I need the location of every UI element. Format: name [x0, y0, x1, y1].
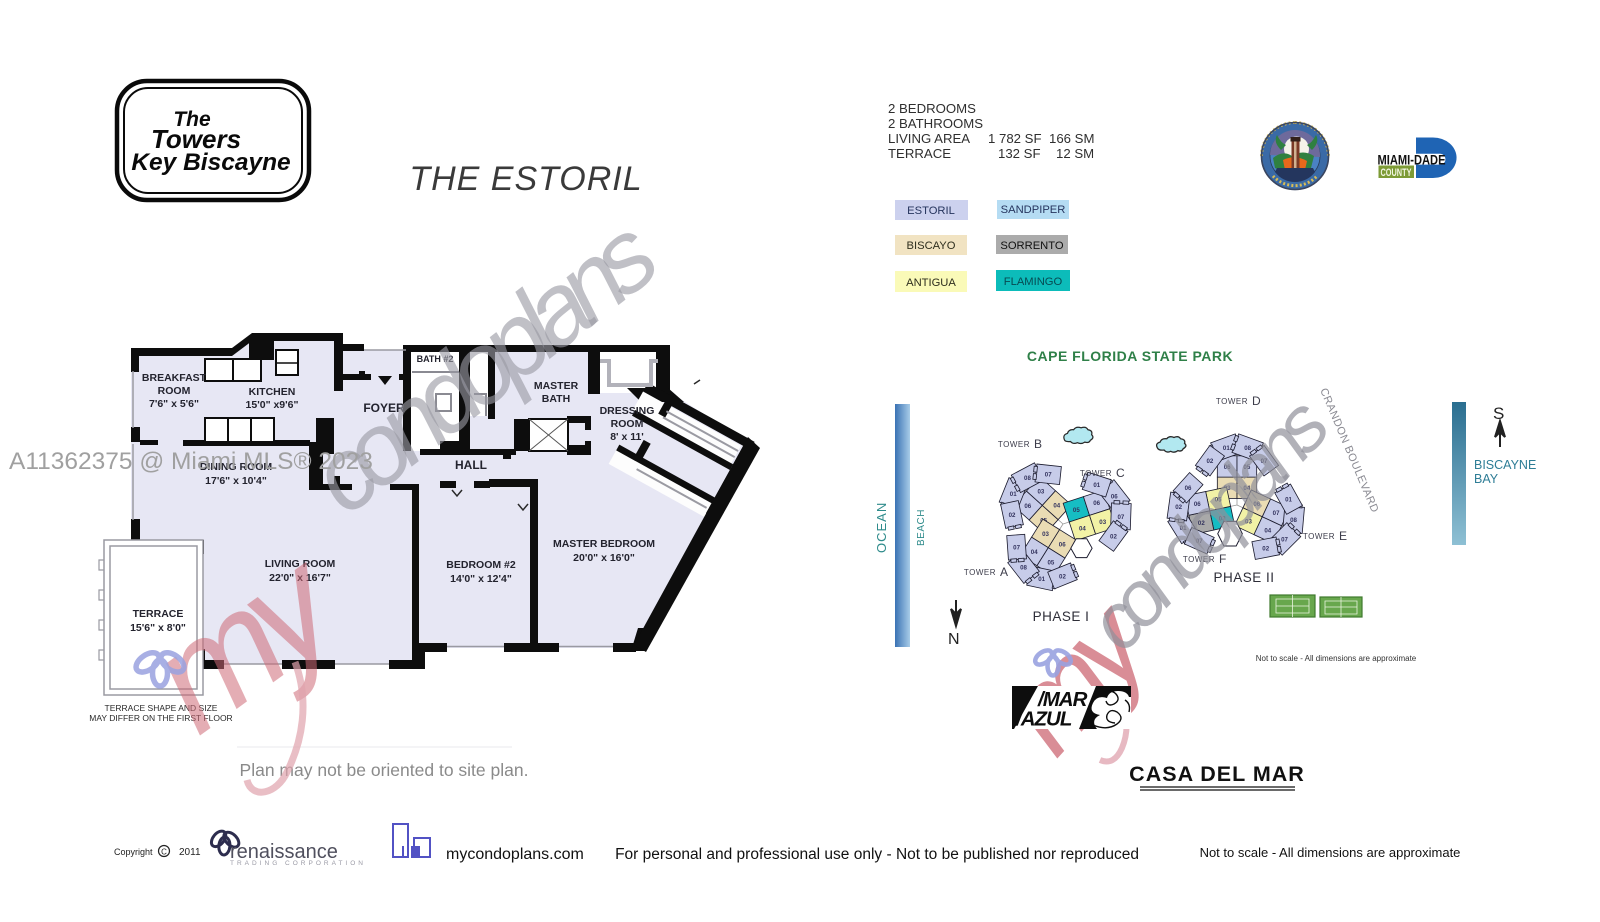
svg-text:04: 04: [1079, 525, 1086, 532]
svg-text:06: 06: [1111, 494, 1118, 501]
svg-text:ROOM: ROOM: [158, 385, 191, 397]
svg-text:BREAKFAST: BREAKFAST: [142, 372, 207, 384]
svg-text:HALL: HALL: [455, 458, 487, 472]
svg-text:05: 05: [1073, 507, 1080, 514]
svg-text:06: 06: [1093, 500, 1100, 507]
svg-text:FLAMINGO: FLAMINGO: [1004, 276, 1063, 288]
svg-text:TOWER: TOWER: [998, 440, 1030, 449]
svg-text:SANDPIPER: SANDPIPER: [1001, 204, 1066, 216]
svg-text:06: 06: [1059, 541, 1066, 548]
svg-text:14'0" x 12'4": 14'0" x 12'4": [450, 573, 512, 585]
svg-text:05: 05: [1047, 559, 1054, 566]
svg-text:04: 04: [1031, 549, 1038, 556]
svg-text:Not to scale - All dimensions: Not to scale - All dimensions are approx…: [1256, 654, 1417, 663]
svg-text:166 SM: 166 SM: [1049, 131, 1094, 146]
svg-text:Not to scale - All dimensions: Not to scale - All dimensions are approx…: [1200, 845, 1461, 860]
svg-text:2011: 2011: [179, 847, 201, 858]
svg-text:TERRACE: TERRACE: [888, 146, 951, 161]
svg-text:07: 07: [1013, 545, 1020, 552]
svg-text:ROOM: ROOM: [611, 418, 644, 430]
svg-text:DRESSING: DRESSING: [600, 405, 655, 417]
svg-text:BATH: BATH: [542, 393, 570, 405]
svg-text:TRADING CORPORATION: TRADING CORPORATION: [230, 860, 366, 867]
svg-text:S: S: [1493, 404, 1504, 423]
svg-text:C: C: [161, 848, 167, 857]
svg-text:02: 02: [1262, 546, 1269, 553]
svg-text:TOWER: TOWER: [1303, 532, 1335, 541]
svg-text:OCEAN: OCEAN: [874, 502, 889, 553]
svg-text:BISCAYNE: BISCAYNE: [1474, 458, 1536, 472]
svg-text:02: 02: [1059, 573, 1066, 580]
svg-text:2 BATHROOMS: 2 BATHROOMS: [888, 116, 983, 131]
svg-text:12 SM: 12 SM: [1056, 146, 1094, 161]
svg-text:01: 01: [1038, 576, 1045, 583]
svg-text:03: 03: [1099, 519, 1106, 526]
svg-text:MIAMI-DADE: MIAMI-DADE: [1378, 152, 1446, 167]
svg-text:02: 02: [1009, 512, 1016, 519]
svg-text:132 SF: 132 SF: [998, 146, 1041, 161]
svg-text:03: 03: [1042, 531, 1049, 538]
svg-text:N: N: [948, 631, 960, 648]
svg-text:BEACH: BEACH: [916, 509, 927, 546]
svg-text:ANTIGUA: ANTIGUA: [906, 277, 956, 289]
svg-text:7'6" x 5'6": 7'6" x 5'6": [149, 398, 199, 410]
svg-text:For personal and professional: For personal and professional use only -…: [615, 846, 1139, 863]
svg-text:TOWER: TOWER: [1216, 397, 1248, 406]
svg-text:mycondoplans.com: mycondoplans.com: [446, 846, 584, 863]
svg-text:07: 07: [1045, 472, 1052, 479]
svg-text:Copyright: Copyright: [114, 847, 153, 857]
svg-text:ESTORIL: ESTORIL: [907, 205, 955, 217]
svg-text:A11362375 @ Miami MLS® 2023: A11362375 @ Miami MLS® 2023: [9, 448, 373, 475]
svg-text:02: 02: [1110, 534, 1117, 541]
svg-text:Key Biscayne: Key Biscayne: [131, 149, 290, 176]
svg-text:08: 08: [1020, 564, 1027, 571]
svg-text:THE ESTORIL: THE ESTORIL: [409, 160, 642, 198]
svg-text:17'6" x 10'4": 17'6" x 10'4": [205, 475, 267, 487]
svg-text:KITCHEN: KITCHEN: [249, 386, 296, 398]
svg-text:C: C: [1116, 466, 1125, 480]
svg-text:8' x 11': 8' x 11': [610, 431, 644, 443]
svg-text:20'0" x 16'0": 20'0" x 16'0": [573, 552, 635, 564]
svg-text:1 782 SF: 1 782 SF: [988, 131, 1042, 146]
svg-text:SORRENTO: SORRENTO: [1000, 240, 1063, 252]
svg-text:04: 04: [1053, 503, 1060, 510]
svg-text:01: 01: [1093, 482, 1100, 489]
svg-text:06: 06: [1024, 503, 1031, 510]
svg-text:07: 07: [1117, 514, 1124, 521]
svg-text:TOWER: TOWER: [1080, 469, 1112, 478]
svg-text:BAY: BAY: [1474, 472, 1499, 486]
svg-text:TOWER: TOWER: [964, 568, 996, 577]
svg-text:E: E: [1339, 529, 1347, 543]
svg-text:CASA DEL MAR: CASA DEL MAR: [1129, 762, 1305, 786]
svg-text:LIVING AREA: LIVING AREA: [888, 131, 970, 146]
svg-text:07: 07: [1281, 536, 1288, 543]
svg-text:BEDROOM #2: BEDROOM #2: [446, 559, 516, 571]
svg-text:CAPE FLORIDA STATE PARK: CAPE FLORIDA STATE PARK: [1027, 348, 1233, 364]
svg-text:B: B: [1034, 437, 1042, 451]
svg-text:01: 01: [1010, 491, 1017, 498]
svg-text:15'0" x9'6": 15'0" x9'6": [246, 399, 299, 411]
svg-text:08: 08: [1024, 475, 1031, 482]
svg-text:2 BEDROOMS: 2 BEDROOMS: [888, 101, 976, 116]
svg-text:BISCAYO: BISCAYO: [907, 240, 956, 252]
svg-text:04: 04: [1264, 528, 1271, 535]
svg-text:COUNTY: COUNTY: [1381, 167, 1412, 179]
svg-text:03: 03: [1038, 488, 1045, 495]
svg-text:A: A: [1000, 565, 1008, 579]
svg-text:/AZUL: /AZUL: [1015, 708, 1072, 731]
svg-text:MASTER BEDROOM: MASTER BEDROOM: [553, 538, 655, 550]
